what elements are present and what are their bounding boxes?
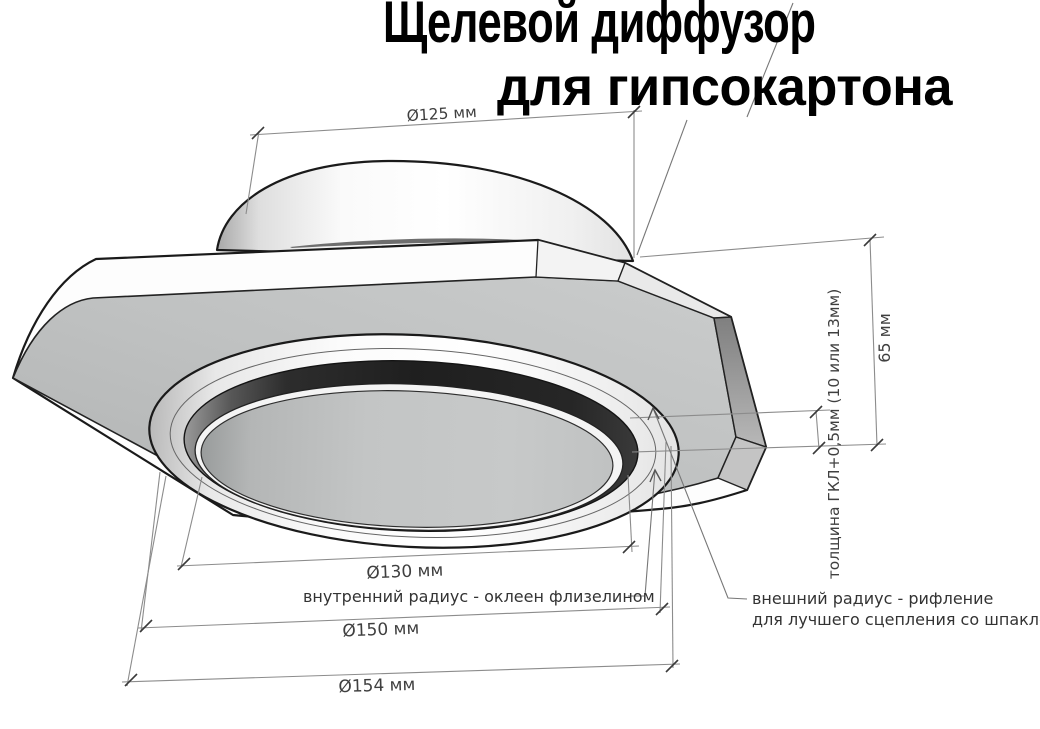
drawing-title-line1: Щелевой диффузор	[383, 0, 816, 52]
dim-height-label: 65 мм	[875, 313, 894, 363]
dim-board-thickness-label: толщина ГКЛ+0,5мм (10 или 13мм)	[825, 289, 843, 580]
dim-inner-diameter-label: Ø130 мм	[366, 561, 444, 584]
dim-middle-diameter-label: Ø150 мм	[342, 619, 420, 642]
dim-outer-diameter-label: Ø154 мм	[338, 675, 415, 697]
outer-radius-callout-line2: для лучшего сцепления со шпаклёвкой	[752, 610, 1040, 629]
technical-drawing: Ø125 мм 65 мм толщина ГКЛ+0,5мм (10 или …	[0, 0, 1040, 729]
drawing-title-line2: для гипсокартона	[497, 60, 952, 114]
inner-radius-callout: внутренний радиус - оклеен флизелином	[303, 587, 655, 606]
outer-radius-callout-line1: внешний радиус - рифление	[752, 589, 993, 608]
